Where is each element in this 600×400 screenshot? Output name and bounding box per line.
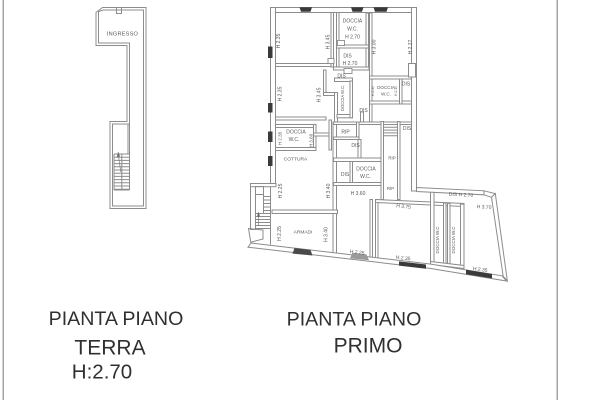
svg-text:W.C.: W.C. xyxy=(381,92,391,97)
svg-text:COTTURA: COTTURA xyxy=(284,157,308,163)
svg-text:H 3.45: H 3.45 xyxy=(317,87,323,102)
svg-text:DOCCIA W.C: DOCCIA W.C xyxy=(435,226,440,254)
svg-text:W.C.: W.C. xyxy=(347,27,358,33)
svg-text:H 2.35: H 2.35 xyxy=(278,131,283,145)
svg-text:H 3.70: H 3.70 xyxy=(477,204,492,211)
svg-text:DIS H 2.70: DIS H 2.70 xyxy=(449,192,474,199)
svg-text:DOCCIA: DOCCIA xyxy=(286,130,306,136)
svg-text:DIS: DIS xyxy=(403,126,412,132)
svg-text:RIP: RIP xyxy=(387,186,394,191)
svg-text:H 3.45: H 3.45 xyxy=(326,34,332,49)
svg-text:W.C.: W.C. xyxy=(289,137,300,143)
svg-text:DOCCIA W.C.: DOCCIA W.C. xyxy=(340,85,345,111)
svg-text:H 2.27: H 2.27 xyxy=(408,39,414,54)
svg-text:RIP: RIP xyxy=(341,130,350,136)
svg-text:DOCCIA: DOCCIA xyxy=(356,167,376,173)
svg-text:H 2.35: H 2.35 xyxy=(276,33,282,48)
svg-text:ARMADI: ARMADI xyxy=(294,230,313,236)
svg-text:H 2.30: H 2.30 xyxy=(394,86,398,96)
svg-text:H 2.25: H 2.25 xyxy=(278,183,284,198)
svg-text:H 3.40: H 3.40 xyxy=(324,227,330,242)
svg-text:PIANTA PIANO: PIANTA PIANO xyxy=(49,308,184,330)
svg-text:DIS: DIS xyxy=(359,108,368,114)
svg-text:DOCCIA W.C: DOCCIA W.C xyxy=(451,226,456,254)
svg-text:H 2.70: H 2.70 xyxy=(345,35,360,41)
svg-text:RIP: RIP xyxy=(388,156,395,161)
svg-text:PIANTA PIANO: PIANTA PIANO xyxy=(287,309,422,331)
svg-text:H 2.25: H 2.25 xyxy=(277,226,283,241)
svg-text:H 3.60: H 3.60 xyxy=(309,133,314,147)
svg-text:DIS: DIS xyxy=(341,172,350,178)
svg-text:DIS: DIS xyxy=(343,54,352,60)
svg-text:H:2.70: H:2.70 xyxy=(72,361,132,384)
svg-text:W.C.: W.C. xyxy=(360,174,371,180)
svg-text:PRIMO: PRIMO xyxy=(334,335,403,358)
svg-text:DIS: DIS xyxy=(351,143,360,149)
svg-text:DOCCIA: DOCCIA xyxy=(343,19,363,25)
svg-text:H 3.40: H 3.40 xyxy=(326,183,332,198)
svg-text:H 3.00: H 3.00 xyxy=(372,39,378,54)
svg-text:H 2.30: H 2.30 xyxy=(371,86,375,96)
svg-text:DIS: DIS xyxy=(337,74,346,80)
svg-text:DIS: DIS xyxy=(402,82,411,88)
svg-text:H 2.70: H 2.70 xyxy=(343,61,358,67)
svg-text:H 2.35: H 2.35 xyxy=(278,86,284,101)
svg-text:TERRA: TERRA xyxy=(74,337,145,360)
svg-text:H 3.60: H 3.60 xyxy=(351,191,366,197)
svg-text:INGRESSO: INGRESSO xyxy=(107,32,139,38)
